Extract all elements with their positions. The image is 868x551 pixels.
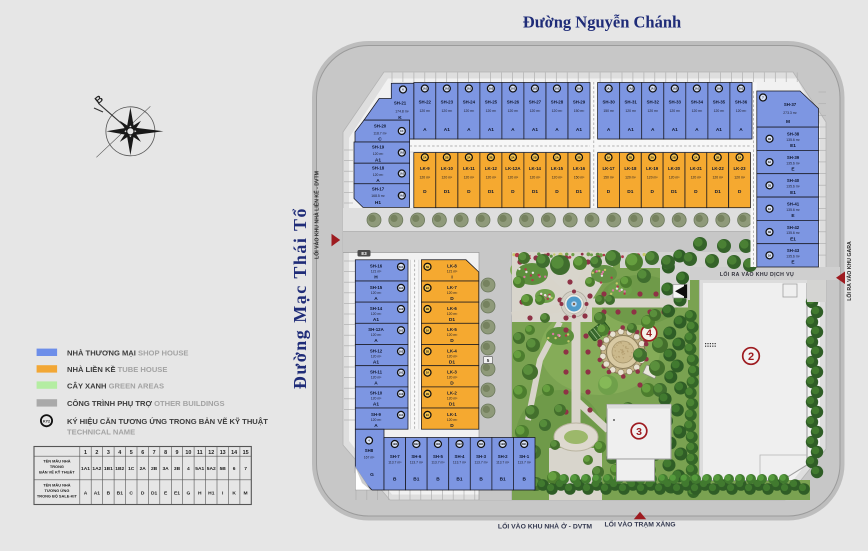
svg-text:120 m²: 120 m² <box>691 176 702 180</box>
svg-text:SH-42: SH-42 <box>787 225 800 230</box>
svg-text:2B: 2B <box>426 392 429 396</box>
svg-text:1A2: 1A2 <box>399 392 404 396</box>
svg-text:120 m²: 120 m² <box>420 109 431 113</box>
svg-text:1A1: 1A1 <box>399 328 404 332</box>
svg-text:LK-2: LK-2 <box>447 391 457 396</box>
svg-text:SH-9: SH-9 <box>371 412 381 417</box>
svg-text:SH-29: SH-29 <box>573 100 586 105</box>
svg-text:1A2: 1A2 <box>489 87 494 91</box>
svg-text:A1: A1 <box>373 402 379 408</box>
svg-text:A1: A1 <box>444 127 450 133</box>
svg-text:120 m²: 120 m² <box>464 109 475 113</box>
svg-text:120 m²: 120 m² <box>447 354 458 358</box>
svg-text:3A: 3A <box>162 466 169 472</box>
svg-text:120 m²: 120 m² <box>447 397 458 401</box>
svg-text:120 m²: 120 m² <box>447 312 458 316</box>
svg-text:A1: A1 <box>94 490 101 496</box>
svg-text:SH-6: SH-6 <box>411 454 421 459</box>
svg-text:D1: D1 <box>488 189 494 195</box>
svg-text:1A1: 1A1 <box>466 87 471 91</box>
svg-text:H1: H1 <box>375 200 381 206</box>
svg-text:135.6 m²: 135.6 m² <box>786 138 800 142</box>
svg-text:A: A <box>374 423 378 429</box>
svg-text:A1: A1 <box>672 127 678 133</box>
svg-text:D: D <box>694 189 698 195</box>
svg-text:120 m²: 120 m² <box>714 109 725 113</box>
svg-text:4: 4 <box>646 328 652 340</box>
svg-text:D1: D1 <box>449 317 455 323</box>
svg-text:5A2: 5A2 <box>399 194 404 198</box>
svg-text:120 m²: 120 m² <box>647 109 658 113</box>
svg-text:TÊN MẪU NHÀ: TÊN MẪU NHÀ <box>43 483 70 488</box>
svg-text:1A1: 1A1 <box>606 87 611 91</box>
svg-text:2B: 2B <box>672 155 675 159</box>
svg-text:E1: E1 <box>174 490 180 496</box>
svg-text:2A: 2A <box>467 155 470 159</box>
svg-text:113.7 m²: 113.7 m² <box>388 461 402 465</box>
svg-text:TƯƠNG ỨNG: TƯƠNG ỨNG <box>44 488 69 493</box>
svg-text:LK-16: LK-16 <box>573 166 586 171</box>
svg-text:SH-16: SH-16 <box>370 264 383 269</box>
svg-text:120 m²: 120 m² <box>371 397 382 401</box>
svg-text:A: A <box>511 127 515 133</box>
svg-text:D: D <box>450 296 454 302</box>
svg-text:TECHNICAL NAME: TECHNICAL NAME <box>67 428 135 437</box>
svg-text:2B: 2B <box>489 155 492 159</box>
svg-text:SH-22: SH-22 <box>419 100 432 105</box>
svg-text:B: B <box>522 477 526 483</box>
svg-text:A: A <box>423 127 427 133</box>
svg-text:1B2: 1B2 <box>500 442 505 446</box>
svg-text:B: B <box>393 477 397 483</box>
svg-text:SH-27: SH-27 <box>529 100 542 105</box>
svg-text:2A: 2A <box>694 155 697 159</box>
svg-text:A1: A1 <box>375 158 381 164</box>
svg-text:Đường Mạc Thái Tổ: Đường Mạc Thái Tổ <box>290 207 310 389</box>
svg-text:120 m²: 120 m² <box>373 152 384 156</box>
svg-text:LỐI RA VÀO KHU GARA: LỐI RA VÀO KHU GARA <box>846 241 853 301</box>
svg-text:120 m²: 120 m² <box>508 109 519 113</box>
svg-text:SH-2: SH-2 <box>498 454 508 459</box>
svg-text:D: D <box>511 189 515 195</box>
svg-text:1A2: 1A2 <box>399 349 404 353</box>
svg-text:SH-32: SH-32 <box>647 100 660 105</box>
svg-text:5: 5 <box>487 358 490 363</box>
svg-text:118.7 m²: 118.7 m² <box>373 132 387 136</box>
svg-text:A: A <box>374 381 378 387</box>
svg-text:135.6 m²: 135.6 m² <box>786 161 800 165</box>
svg-text:120 m²: 120 m² <box>371 312 382 316</box>
svg-text:120 m²: 120 m² <box>625 176 636 180</box>
svg-text:LỐI RA VÀO KHU DỊCH VỤ: LỐI RA VÀO KHU DỊCH VỤ <box>720 271 794 278</box>
svg-text:135.6 m²: 135.6 m² <box>786 185 800 189</box>
svg-text:11: 11 <box>197 450 203 456</box>
svg-text:1A2: 1A2 <box>672 87 677 91</box>
svg-text:A1: A1 <box>576 127 582 133</box>
svg-text:3B: 3B <box>768 137 771 141</box>
svg-text:113.7 m²: 113.7 m² <box>410 461 424 465</box>
svg-text:120 m²: 120 m² <box>420 176 431 180</box>
svg-text:120 m²: 120 m² <box>552 109 563 113</box>
svg-text:A1: A1 <box>373 317 379 323</box>
svg-text:113.7 m²: 113.7 m² <box>496 461 510 465</box>
svg-text:SH-43: SH-43 <box>787 248 800 253</box>
svg-text:NHÀ LIỀN KỀ TUBE HOUSE: NHÀ LIỀN KỀ TUBE HOUSE <box>67 364 167 374</box>
svg-text:1A1: 1A1 <box>555 87 560 91</box>
svg-text:14: 14 <box>231 450 237 456</box>
svg-text:174.8 m²: 174.8 m² <box>395 110 409 114</box>
svg-text:1B2: 1B2 <box>414 442 419 446</box>
svg-text:3B: 3B <box>768 230 771 234</box>
svg-text:7: 7 <box>153 450 156 456</box>
svg-text:A: A <box>695 127 699 133</box>
svg-text:SH-40: SH-40 <box>787 178 800 183</box>
svg-text:120 m²: 120 m² <box>442 109 453 113</box>
svg-text:1C: 1C <box>128 466 135 472</box>
svg-text:167 m²: 167 m² <box>364 456 375 460</box>
svg-text:1B1: 1B1 <box>392 442 397 446</box>
svg-text:D1: D1 <box>449 402 455 408</box>
svg-text:H: H <box>374 275 378 281</box>
svg-text:A1: A1 <box>628 127 634 133</box>
svg-text:SH-12: SH-12 <box>370 348 383 353</box>
svg-text:120 m²: 120 m² <box>371 354 382 358</box>
svg-text:NHÀ THƯƠNG MẠI SHOP HOUSE: NHÀ THƯƠNG MẠI SHOP HOUSE <box>67 349 189 358</box>
svg-text:3: 3 <box>107 450 110 456</box>
svg-text:5A1: 5A1 <box>195 466 204 472</box>
svg-text:168.5 m²: 168.5 m² <box>371 194 385 198</box>
svg-text:D: D <box>141 490 145 496</box>
svg-text:SH-37: SH-37 <box>784 102 797 107</box>
svg-text:LK-21: LK-21 <box>690 166 703 171</box>
svg-text:A1: A1 <box>716 127 722 133</box>
svg-text:SH-15: SH-15 <box>370 285 383 290</box>
svg-text:SH-4: SH-4 <box>455 454 465 459</box>
svg-text:1B2: 1B2 <box>457 442 462 446</box>
svg-text:M: M <box>244 490 248 496</box>
svg-text:D: D <box>607 189 611 195</box>
svg-text:2B: 2B <box>716 155 719 159</box>
svg-text:A: A <box>651 127 655 133</box>
svg-text:SH-25: SH-25 <box>485 100 498 105</box>
svg-text:135.6 m²: 135.6 m² <box>786 255 800 259</box>
svg-text:120 m²: 120 m² <box>530 176 541 180</box>
svg-text:Đường Nguyễn Chánh: Đường Nguyễn Chánh <box>523 13 681 32</box>
svg-text:10: 10 <box>185 450 191 456</box>
svg-text:1A2: 1A2 <box>717 87 722 91</box>
svg-text:4: 4 <box>187 466 190 472</box>
svg-text:SH-26: SH-26 <box>507 100 520 105</box>
svg-text:2A: 2A <box>511 155 514 159</box>
svg-text:120 m²: 120 m² <box>736 109 747 113</box>
svg-text:D1: D1 <box>671 189 677 195</box>
svg-text:1B1: 1B1 <box>522 442 527 446</box>
svg-text:120 m²: 120 m² <box>447 333 458 337</box>
svg-text:2A: 2A <box>651 155 654 159</box>
svg-text:1A1: 1A1 <box>511 87 516 91</box>
svg-text:1A1: 1A1 <box>422 87 427 91</box>
svg-text:SH-5: SH-5 <box>433 454 443 459</box>
svg-text:113.7 m²: 113.7 m² <box>431 461 445 465</box>
svg-text:1B1: 1B1 <box>436 442 441 446</box>
svg-text:2A: 2A <box>426 413 429 417</box>
svg-text:CÔNG TRÌNH PHỤ TRỢ OTHER BUILD: CÔNG TRÌNH PHỤ TRỢ OTHER BUILDINGS <box>67 399 225 408</box>
svg-text:120 m²: 120 m² <box>625 109 636 113</box>
svg-text:120 m²: 120 m² <box>486 176 497 180</box>
svg-text:B: B <box>107 490 111 496</box>
svg-text:2: 2 <box>748 351 754 363</box>
svg-text:G: G <box>370 472 374 478</box>
svg-text:SH-7: SH-7 <box>390 454 400 459</box>
svg-text:LK-5: LK-5 <box>447 327 457 332</box>
svg-text:SH-12A: SH-12A <box>368 327 384 332</box>
svg-text:2B: 2B <box>445 155 448 159</box>
svg-text:B1: B1 <box>413 477 419 483</box>
svg-text:120 m²: 120 m² <box>447 376 458 380</box>
svg-text:SH-38: SH-38 <box>787 132 800 137</box>
svg-text:2: 2 <box>95 450 98 456</box>
svg-text:2A: 2A <box>426 371 429 375</box>
svg-text:6: 6 <box>233 466 236 472</box>
svg-text:LK-6: LK-6 <box>447 306 457 311</box>
svg-text:KY2: KY2 <box>43 420 50 424</box>
svg-text:SH-1: SH-1 <box>519 454 529 459</box>
svg-text:LK-18: LK-18 <box>624 166 637 171</box>
svg-text:SH-18: SH-18 <box>372 166 385 171</box>
svg-text:SH-14: SH-14 <box>370 306 383 311</box>
svg-text:12: 12 <box>208 450 214 456</box>
svg-text:SH-3: SH-3 <box>476 454 486 459</box>
svg-text:C: C <box>129 490 133 496</box>
svg-text:8: 8 <box>164 450 167 456</box>
svg-text:H: H <box>198 490 202 496</box>
svg-text:A: A <box>376 178 380 184</box>
svg-text:B: B <box>436 477 440 483</box>
svg-text:A: A <box>555 127 559 133</box>
svg-text:150 m²: 150 m² <box>603 109 614 113</box>
svg-text:1A2: 1A2 <box>444 87 449 91</box>
svg-text:SH-17: SH-17 <box>372 187 385 192</box>
svg-text:2A: 2A <box>423 155 426 159</box>
svg-text:5A1: 5A1 <box>399 265 404 269</box>
svg-text:2B: 2B <box>426 349 429 353</box>
svg-text:2B: 2B <box>151 466 158 472</box>
svg-text:2B: 2B <box>426 307 429 311</box>
svg-text:120 m²: 120 m² <box>371 333 382 337</box>
svg-text:LK-8: LK-8 <box>447 264 457 269</box>
svg-text:CÂY XANH GREEN AREAS: CÂY XANH GREEN AREAS <box>67 381 164 390</box>
svg-text:4: 4 <box>118 450 121 456</box>
svg-text:135.6 m²: 135.6 m² <box>786 231 800 235</box>
svg-text:SH-20: SH-20 <box>374 124 387 129</box>
svg-text:113.7 m²: 113.7 m² <box>453 461 467 465</box>
svg-text:A: A <box>84 490 88 496</box>
svg-text:SH-21: SH-21 <box>394 101 407 106</box>
svg-text:SH-24: SH-24 <box>463 100 476 105</box>
svg-text:LK-20: LK-20 <box>668 166 681 171</box>
svg-text:BẢN VẼ KỸ THUẬT: BẢN VẼ KỸ THUẬT <box>39 470 75 475</box>
svg-text:A1: A1 <box>532 127 538 133</box>
svg-text:5B: 5B <box>220 466 227 472</box>
svg-text:135.6 m²: 135.6 m² <box>786 208 800 212</box>
svg-text:D: D <box>555 189 559 195</box>
svg-text:1B1: 1B1 <box>479 442 484 446</box>
svg-text:3A: 3A <box>768 253 771 257</box>
svg-text:120 m²: 120 m² <box>508 176 519 180</box>
svg-text:LK-9: LK-9 <box>420 166 430 171</box>
svg-text:SH-19: SH-19 <box>372 145 385 150</box>
svg-text:SH-31: SH-31 <box>625 100 638 105</box>
svg-text:D: D <box>738 189 742 195</box>
svg-text:1A2: 1A2 <box>399 307 404 311</box>
svg-text:1B2: 1B2 <box>115 466 124 472</box>
svg-text:2A: 2A <box>555 155 558 159</box>
svg-text:5A2: 5A2 <box>207 466 216 472</box>
svg-text:D1: D1 <box>627 189 633 195</box>
svg-text:SH-28: SH-28 <box>551 100 564 105</box>
svg-text:5B: 5B <box>426 265 429 269</box>
svg-text:120 m²: 120 m² <box>712 176 723 180</box>
svg-text:LK-17: LK-17 <box>602 166 615 171</box>
svg-text:D1: D1 <box>444 189 450 195</box>
svg-text:120 m²: 120 m² <box>669 176 680 180</box>
svg-text:G: G <box>186 490 190 496</box>
svg-text:LK-7: LK-7 <box>447 285 457 290</box>
svg-text:120 m²: 120 m² <box>373 173 384 177</box>
svg-text:LK-22: LK-22 <box>712 166 725 171</box>
svg-text:3B: 3B <box>174 466 181 472</box>
svg-text:D1: D1 <box>576 189 582 195</box>
svg-text:7: 7 <box>244 466 247 472</box>
svg-text:120 m²: 120 m² <box>371 376 382 380</box>
svg-text:15: 15 <box>243 450 249 456</box>
svg-text:LK-1: LK-1 <box>447 412 457 417</box>
svg-text:273.3 m²: 273.3 m² <box>783 111 797 115</box>
svg-text:D1: D1 <box>715 189 721 195</box>
svg-text:2A: 2A <box>607 155 610 159</box>
svg-text:SH-39: SH-39 <box>787 155 800 160</box>
svg-text:1A1: 1A1 <box>399 286 404 290</box>
svg-text:150 m²: 150 m² <box>574 176 585 180</box>
svg-text:120 m²: 120 m² <box>447 291 458 295</box>
svg-text:TRONG: TRONG <box>50 464 64 469</box>
svg-text:2A: 2A <box>426 328 429 332</box>
svg-text:SH-34: SH-34 <box>691 100 704 105</box>
svg-text:120 m²: 120 m² <box>734 176 745 180</box>
svg-text:3A: 3A <box>768 207 771 211</box>
svg-text:6: 6 <box>141 450 144 456</box>
svg-text:D: D <box>450 338 454 344</box>
svg-text:LK-11: LK-11 <box>463 166 475 171</box>
svg-text:B: B <box>479 477 483 483</box>
svg-text:120 m²: 120 m² <box>692 109 703 113</box>
svg-text:3A: 3A <box>768 160 771 164</box>
svg-text:A1: A1 <box>488 127 494 133</box>
svg-text:D: D <box>423 189 427 195</box>
svg-text:LK-14: LK-14 <box>529 166 542 171</box>
svg-text:121 m²: 121 m² <box>371 270 382 274</box>
svg-text:120 m²: 120 m² <box>371 418 382 422</box>
svg-text:120 m²: 120 m² <box>670 109 681 113</box>
svg-text:KÝ HIỆU CĂN TƯƠNG ỨNG TRONG BẢ: KÝ HIỆU CĂN TƯƠNG ỨNG TRONG BẢN VẼ KỸ TH… <box>67 417 268 426</box>
svg-text:A: A <box>739 127 743 133</box>
svg-text:2B: 2B <box>533 155 536 159</box>
svg-text:1C: 1C <box>400 129 403 133</box>
svg-text:2A: 2A <box>140 466 147 472</box>
svg-text:E1: E1 <box>790 190 796 196</box>
svg-text:13: 13 <box>220 450 226 456</box>
svg-text:150 m²: 150 m² <box>603 176 614 180</box>
svg-text:LỐI VÀO KHU NHÀ LIÊN KẾ - DVTM: LỐI VÀO KHU NHÀ LIÊN KẾ - DVTM <box>313 171 321 259</box>
svg-text:B1: B1 <box>500 477 506 483</box>
svg-text:120 m²: 120 m² <box>647 176 658 180</box>
svg-text:120 m²: 120 m² <box>530 109 541 113</box>
svg-text:1A2: 1A2 <box>92 466 101 472</box>
svg-text:5: 5 <box>130 450 133 456</box>
svg-text:LK-12A: LK-12A <box>505 166 521 171</box>
svg-text:113.7 m²: 113.7 m² <box>518 461 532 465</box>
svg-text:E1: E1 <box>790 236 796 242</box>
svg-text:1A2: 1A2 <box>577 87 582 91</box>
svg-text:120 m²: 120 m² <box>486 109 497 113</box>
svg-text:TRONG BỘ SALE-KIT: TRONG BỘ SALE-KIT <box>37 494 78 499</box>
svg-text:3: 3 <box>636 426 642 438</box>
svg-text:D: D <box>650 189 654 195</box>
svg-text:SH-11: SH-11 <box>370 370 383 375</box>
svg-text:1A1: 1A1 <box>399 413 404 417</box>
svg-text:1A1: 1A1 <box>81 466 90 472</box>
svg-text:LK-10: LK-10 <box>441 166 454 171</box>
svg-text:A1: A1 <box>373 359 379 365</box>
svg-text:B1: B1 <box>456 477 462 483</box>
svg-text:SH-10: SH-10 <box>370 391 383 396</box>
svg-text:SH8: SH8 <box>365 448 374 453</box>
svg-text:K: K <box>232 490 236 496</box>
svg-text:2A: 2A <box>738 155 741 159</box>
svg-text:D: D <box>467 189 471 195</box>
svg-text:B1: B1 <box>117 490 124 496</box>
svg-text:121 m²: 121 m² <box>447 270 458 274</box>
svg-text:SH-35: SH-35 <box>713 100 726 105</box>
svg-text:120 m²: 120 m² <box>464 176 475 180</box>
svg-text:120 m²: 120 m² <box>552 176 563 180</box>
svg-text:120 m²: 120 m² <box>447 418 458 422</box>
svg-text:1: 1 <box>84 450 87 456</box>
svg-text:LK-3: LK-3 <box>447 370 457 375</box>
svg-text:2B: 2B <box>629 155 632 159</box>
svg-text:A: A <box>374 296 378 302</box>
svg-text:M: M <box>786 119 790 125</box>
svg-text:D1: D1 <box>151 490 158 496</box>
svg-text:SH-36: SH-36 <box>735 100 748 105</box>
svg-text:9: 9 <box>176 450 179 456</box>
svg-text:1A1: 1A1 <box>399 172 404 176</box>
svg-text:D: D <box>450 423 454 429</box>
svg-text:SH-33: SH-33 <box>669 100 682 105</box>
svg-text:E3: E3 <box>361 251 367 256</box>
svg-text:LK-19: LK-19 <box>646 166 659 171</box>
svg-text:D: D <box>450 381 454 387</box>
svg-text:120 m²: 120 m² <box>442 176 453 180</box>
svg-text:TÊN MẪU NHÀ: TÊN MẪU NHÀ <box>43 459 70 464</box>
svg-text:H1: H1 <box>208 490 215 496</box>
svg-text:A: A <box>374 338 378 344</box>
svg-text:A: A <box>467 127 471 133</box>
svg-text:150 m²: 150 m² <box>574 109 585 113</box>
svg-text:LK-4: LK-4 <box>447 348 457 353</box>
svg-text:LK-15: LK-15 <box>551 166 564 171</box>
svg-text:1A1: 1A1 <box>739 87 744 91</box>
